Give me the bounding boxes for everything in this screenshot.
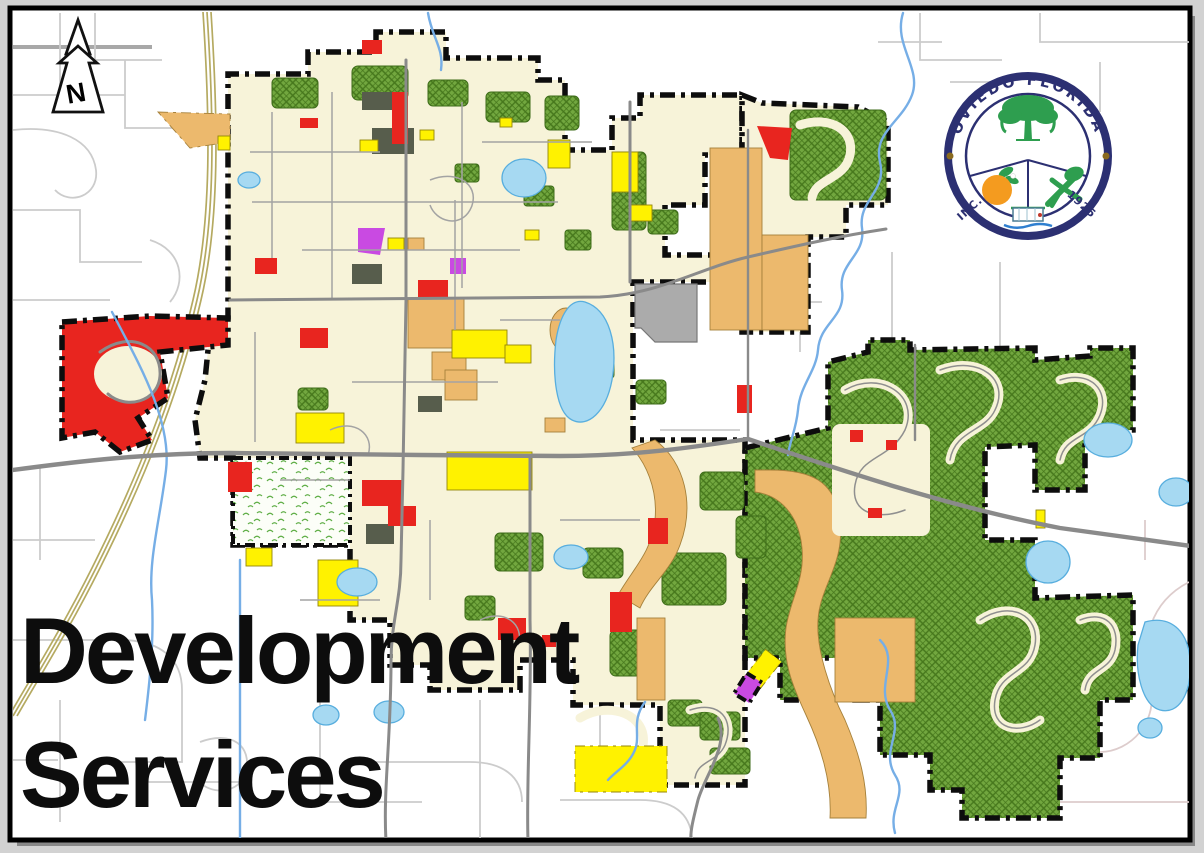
title-line-2: Services [20,722,383,827]
title-line-1: Development [20,598,580,703]
city-seal: OVIEDO FLORIDA INC. 1925 [947,73,1110,236]
map-canvas: N [0,0,1204,853]
seal-acorn-right-icon [1103,153,1110,160]
zoning-map-page: N [0,0,1204,853]
seal-acorn-left-icon [947,153,954,160]
